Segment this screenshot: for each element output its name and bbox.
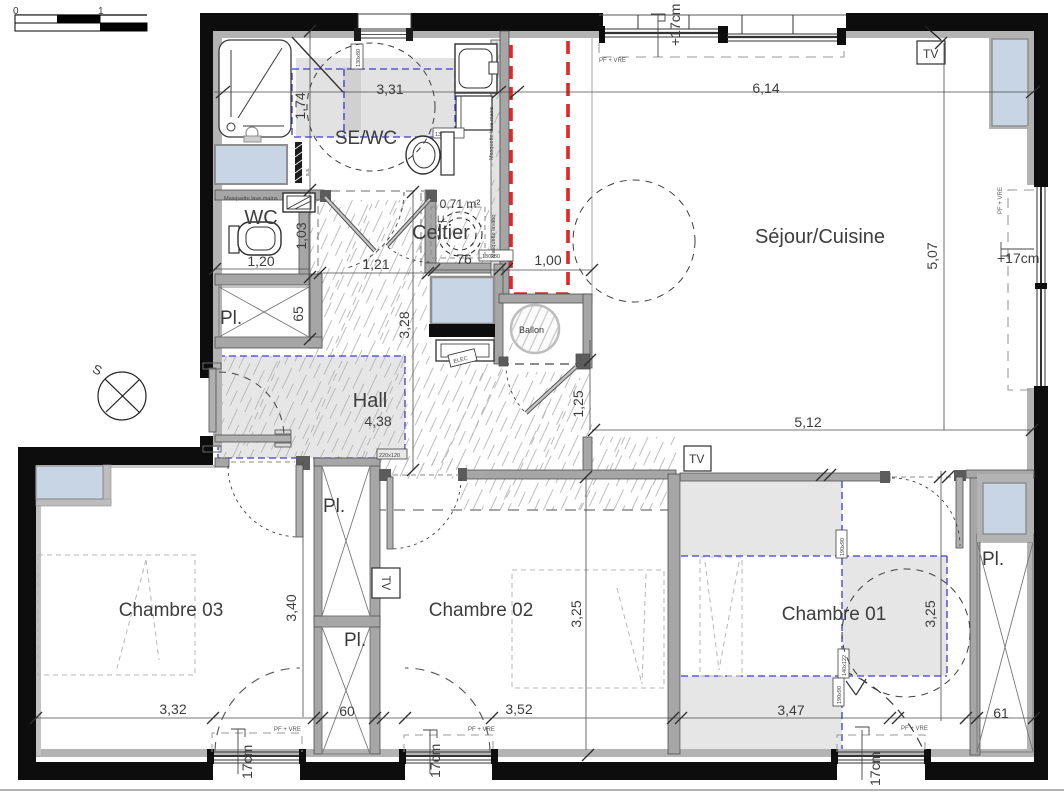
svg-text:4,38: 4,38 (364, 413, 391, 429)
svg-text:WC: WC (244, 207, 277, 229)
svg-text:0,71 m²: 0,71 m² (440, 197, 481, 211)
svg-text:Séjour/Cuisine: Séjour/Cuisine (755, 226, 885, 248)
svg-text:Chambre 03: Chambre 03 (119, 600, 224, 621)
svg-text:Pl.: Pl. (344, 630, 366, 651)
svg-text:5,07: 5,07 (924, 242, 940, 269)
svg-text:3,25: 3,25 (922, 600, 938, 627)
svg-text:Pl.: Pl. (982, 549, 1004, 570)
svg-text:SE/WC: SE/WC (335, 128, 397, 149)
svg-text:Celtier: Celtier (412, 222, 470, 244)
svg-text:190x90: 190x90 (840, 538, 846, 556)
svg-text:190x90: 190x90 (837, 686, 843, 704)
svg-text:220x120: 220x120 (379, 453, 400, 459)
svg-text:65: 65 (290, 306, 306, 322)
svg-text:TV: TV (379, 576, 391, 591)
svg-text:Chambre 01: Chambre 01 (782, 604, 887, 625)
svg-text:17cm: 17cm (867, 752, 883, 786)
svg-text:17cm: 17cm (239, 745, 255, 779)
svg-text:3,47: 3,47 (777, 702, 804, 718)
svg-text:PF + VRE: PF + VRE (998, 187, 1004, 214)
svg-text:1,21: 1,21 (362, 256, 389, 272)
svg-text:PF + VRE: PF + VRE (274, 727, 301, 733)
svg-text:5,12: 5,12 (794, 414, 821, 430)
svg-text:TV: TV (923, 47, 938, 61)
svg-text:1,74: 1,74 (292, 92, 308, 119)
svg-text:3,28: 3,28 (396, 311, 412, 338)
svg-text:60: 60 (339, 703, 355, 719)
svg-text:Masquette lavabo: Masquette lavabo (491, 215, 497, 258)
svg-text:61: 61 (993, 705, 1009, 721)
svg-text:76: 76 (456, 251, 472, 267)
svg-text:130x80: 130x80 (356, 49, 362, 67)
svg-text:1,20: 1,20 (247, 253, 274, 269)
svg-text:Hall: Hall (353, 390, 387, 412)
svg-text:Ballon: Ballon (519, 325, 544, 335)
svg-text:PF + VRE: PF + VRE (901, 726, 928, 732)
svg-text:+17cm: +17cm (997, 250, 1039, 266)
svg-text:3,40: 3,40 (283, 594, 299, 621)
svg-text:1,00: 1,00 (534, 252, 561, 268)
svg-text:17cm: 17cm (427, 744, 443, 778)
svg-text:Chambre 02: Chambre 02 (429, 600, 534, 621)
svg-text:PF + VRE: PF + VRE (468, 727, 495, 733)
svg-text:1,03: 1,03 (293, 222, 309, 249)
svg-text:TV: TV (689, 452, 704, 466)
svg-text:PF + VRE: PF + VRE (599, 58, 626, 64)
svg-text:+17cm: +17cm (667, 4, 683, 46)
svg-text:Pl.: Pl. (323, 496, 345, 517)
svg-text:3,31: 3,31 (376, 81, 403, 97)
svg-text:1,25: 1,25 (570, 390, 586, 417)
svg-text:6,14: 6,14 (752, 80, 779, 96)
svg-text:3,32: 3,32 (159, 701, 186, 717)
svg-text:Masquette lave mains: Masquette lave mains (489, 106, 495, 160)
svg-text:3,25: 3,25 (568, 600, 584, 627)
svg-text:3,52: 3,52 (505, 701, 532, 717)
svg-text:Pl.: Pl. (220, 308, 242, 329)
svg-text:Masquette lave mains: Masquette lave mains (224, 196, 278, 202)
